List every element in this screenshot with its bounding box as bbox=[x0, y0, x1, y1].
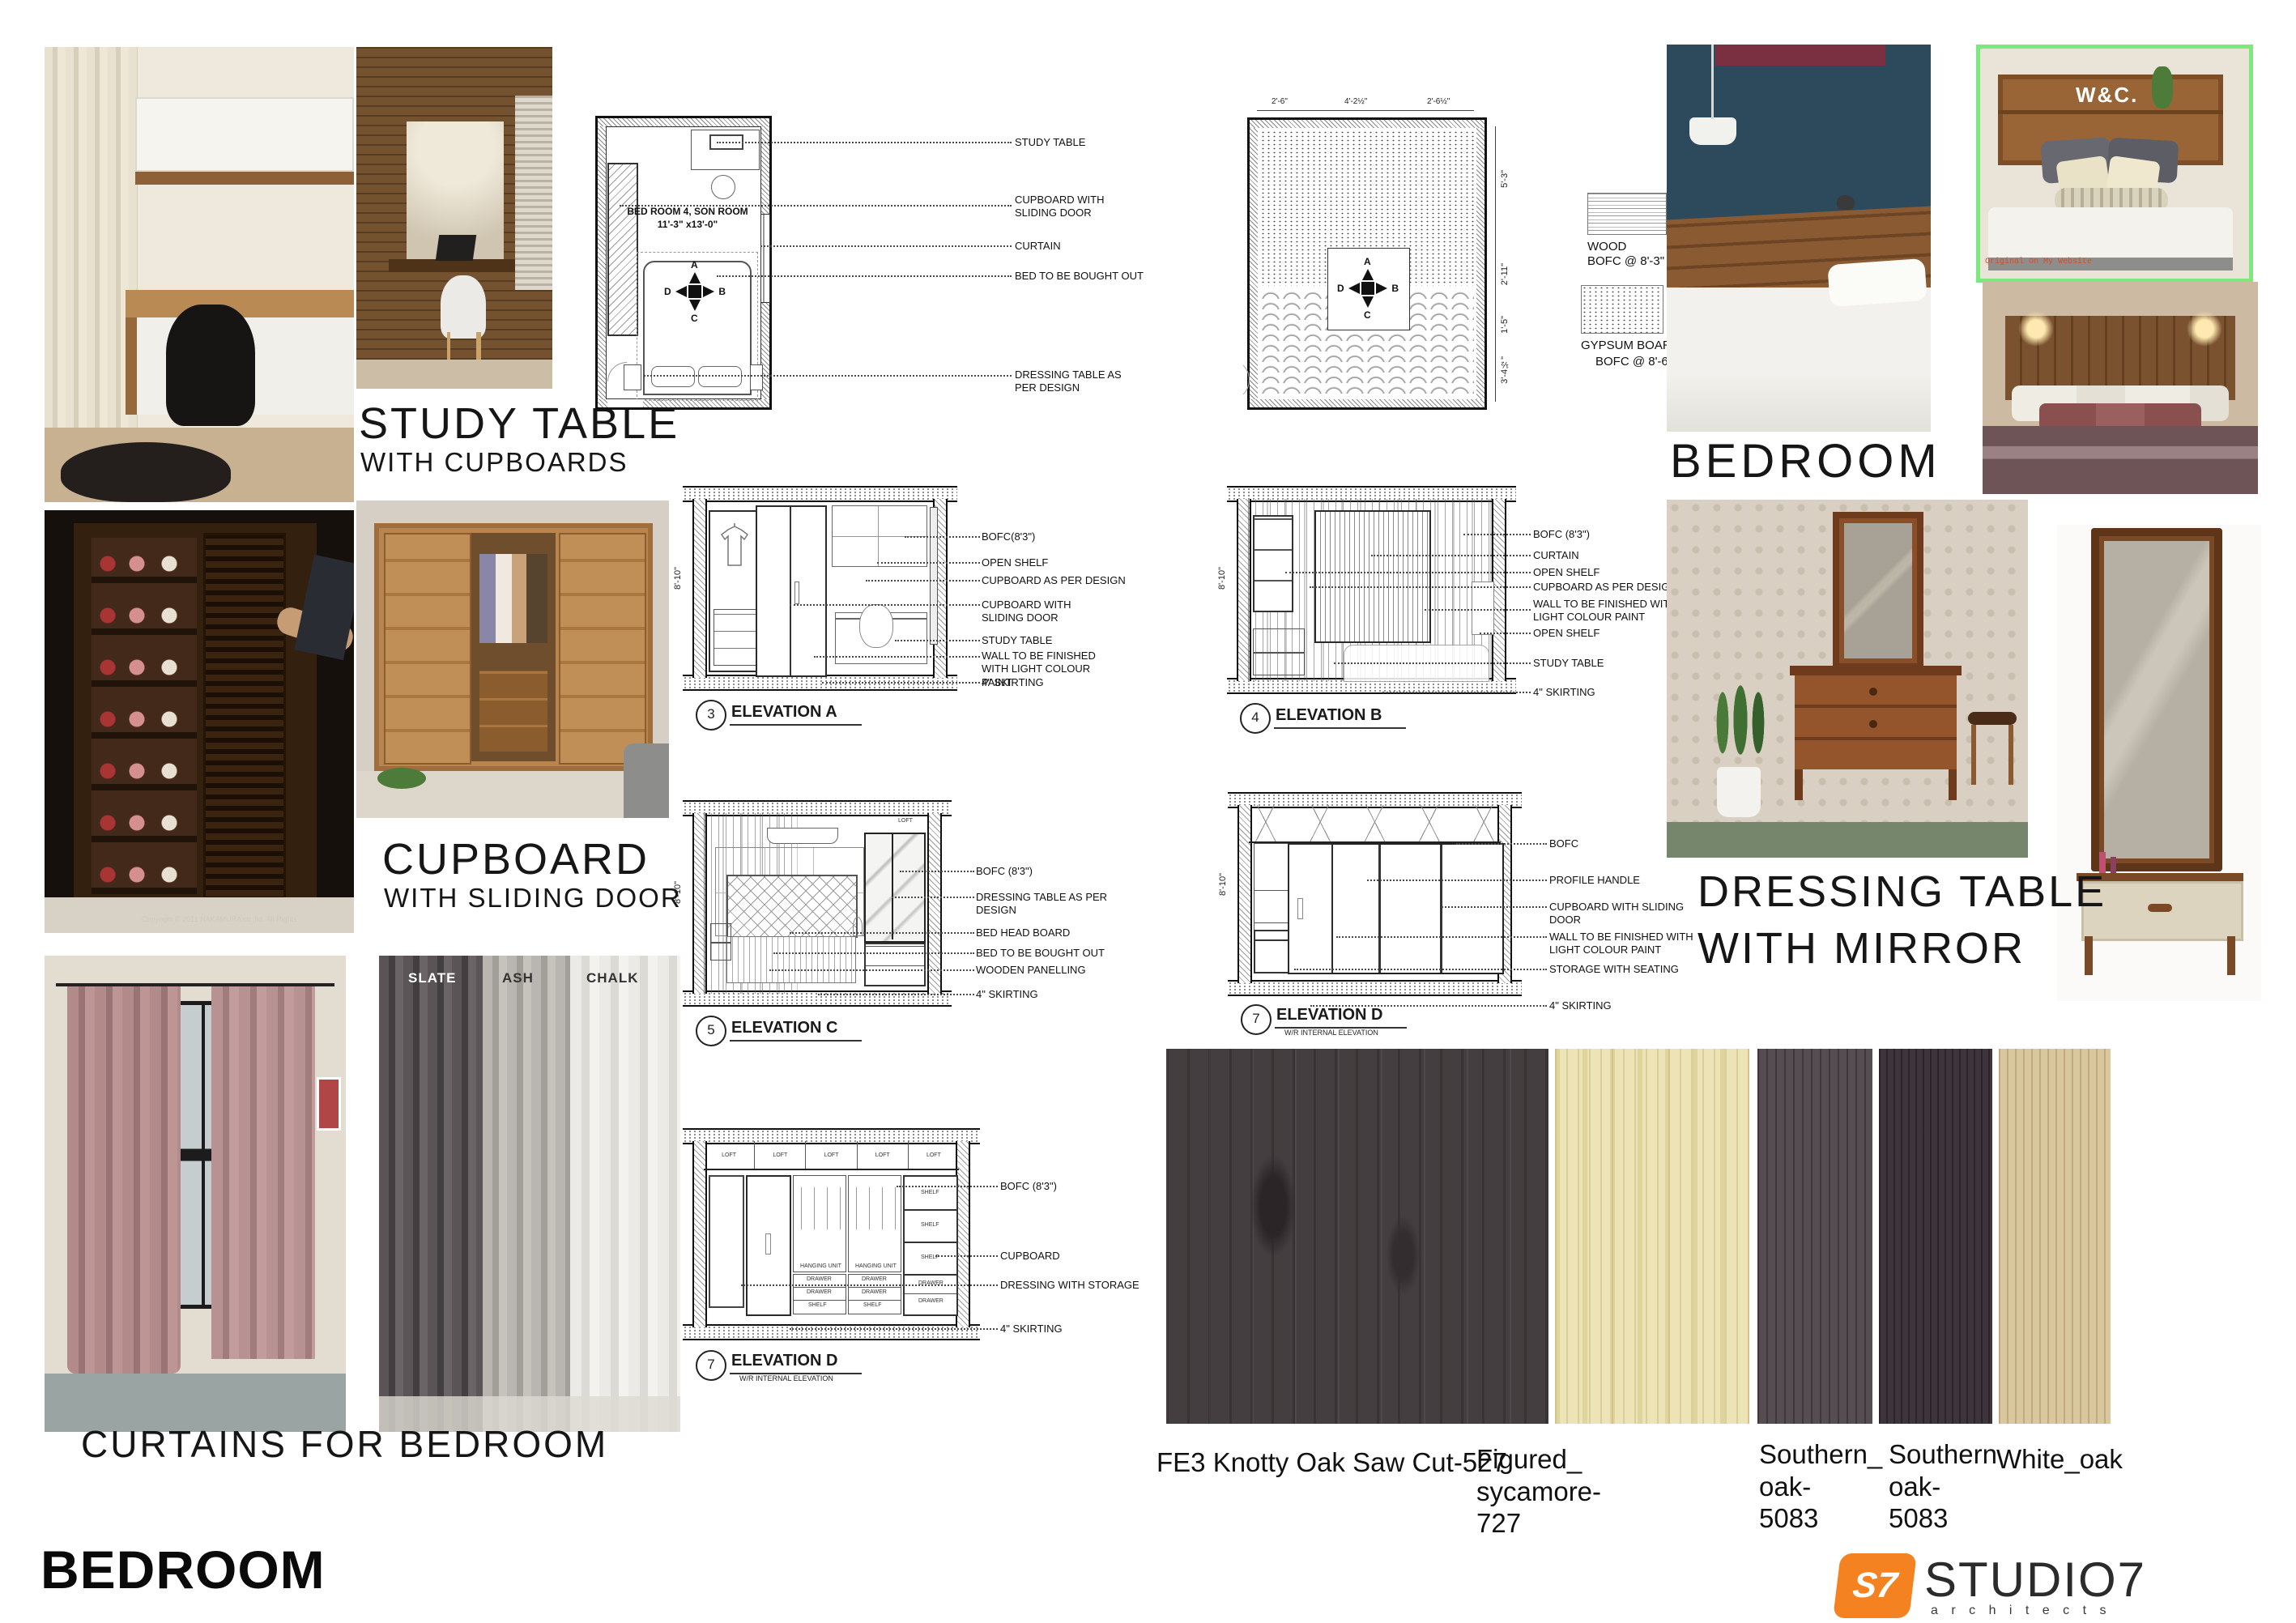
wc-photo-caption: Original On My Website bbox=[1985, 258, 2092, 266]
compass-arrow-right bbox=[703, 286, 714, 297]
studio7-logo: S7 STUDIO7 a r c h i t e c t s bbox=[1837, 1552, 2258, 1621]
legend-wood-name: WOOD bbox=[1587, 240, 1626, 255]
compass-square bbox=[1361, 282, 1374, 295]
mirror-glass-art bbox=[1844, 523, 1912, 658]
open-shelf-right bbox=[1472, 581, 1494, 635]
plan-callout-4: BED TO BE BOUGHT OUT bbox=[1015, 270, 1161, 283]
bedroom-title-left: BEDROOM bbox=[40, 1539, 326, 1600]
sliding-cupboard bbox=[1318, 843, 1504, 974]
leader bbox=[877, 562, 980, 564]
wall-hatch-left bbox=[598, 126, 607, 399]
elevation-a-title: ELEVATION A bbox=[730, 703, 862, 726]
plan-callout-3: CURTAIN bbox=[1015, 240, 1152, 253]
wall-col-left bbox=[692, 499, 707, 678]
wr-door bbox=[746, 1175, 791, 1316]
leader bbox=[1425, 609, 1531, 611]
ceiling-plan-drawing: A C D B bbox=[1247, 117, 1487, 410]
elevation-d1-dim: 8'-10" bbox=[1218, 873, 1228, 896]
lamp-glow-left bbox=[2018, 311, 2054, 347]
elevation-a: 3 ELEVATION A 8'-10" BOFC(8'3") OPEN SHE… bbox=[692, 486, 1146, 729]
plan-compass: A C D B bbox=[669, 266, 721, 317]
elev-d1-callout-4: WALL TO BE FINISHED WITH LIGHT COLOUR PA… bbox=[1549, 931, 1711, 957]
drawer-stack-2: DRAWER DRAWER SHELF bbox=[848, 1274, 901, 1314]
elev-c-callout-6: 4" SKIRTING bbox=[976, 988, 1130, 1001]
elev-c-callout-1: BOFC (8'3") bbox=[976, 865, 1130, 878]
elevation-d2-marker: 7 bbox=[696, 1350, 726, 1381]
tall-mirror-glass-art bbox=[2104, 541, 2209, 858]
leader bbox=[897, 1186, 998, 1187]
legend-wood-bofc: BOFC @ 8'-3" bbox=[1587, 254, 1664, 270]
elev-c-callout-2: DRESSING TABLE AS PER DESIGN bbox=[976, 891, 1114, 918]
compass-arrow-down bbox=[689, 300, 701, 311]
slab-bottom bbox=[1228, 980, 1522, 996]
plan-pillow-1 bbox=[651, 366, 695, 387]
compass-arrow-down bbox=[1362, 296, 1374, 308]
door-left-art bbox=[384, 533, 471, 765]
slate-curtain-art bbox=[379, 956, 486, 1432]
plan-pillow-2 bbox=[698, 366, 742, 387]
drawer-line bbox=[849, 1300, 901, 1301]
elev-b-callout-5: WALL TO BE FINISHED WITH LIGHT COLOUR PA… bbox=[1533, 598, 1683, 624]
mood-board: STUDY TABLE WITH CUPBOARDS Copyright © 2… bbox=[0, 0, 2296, 1623]
bed-headboard bbox=[726, 875, 858, 938]
leader bbox=[773, 952, 974, 954]
elev-b-callout-7: STUDY TABLE bbox=[1533, 657, 1687, 670]
shelf-label: SHELF bbox=[808, 1302, 827, 1308]
drawer-label: DRAWER bbox=[862, 1276, 887, 1282]
lamp-art bbox=[1689, 117, 1736, 145]
plan-cupboard bbox=[607, 163, 638, 336]
leader bbox=[1456, 843, 1547, 845]
study-table-photo-2 bbox=[356, 47, 552, 389]
elevation-b-dim: 8'-10" bbox=[1217, 567, 1227, 590]
elevation-c: LOFT 5 ELEVATION C 8'-10" BOFC (8'3") DR… bbox=[692, 800, 1154, 1047]
shelf-column: SHELF SHELF SHELF DRAWER DRAWER bbox=[903, 1175, 958, 1316]
open-shelf-left bbox=[1253, 515, 1293, 612]
elev-d1-callout-6: 4" SKIRTING bbox=[1549, 999, 1711, 1012]
compass-letter-b: B bbox=[1391, 283, 1399, 294]
perfume2-art bbox=[2111, 857, 2116, 873]
leader bbox=[1463, 534, 1531, 535]
shade-label-slate: SLATE bbox=[408, 970, 456, 986]
curtains-title: CURTAINS FOR BEDROOM bbox=[81, 1422, 608, 1466]
elevation-a-marker: 3 bbox=[696, 700, 726, 731]
rug2-art bbox=[1667, 822, 2028, 858]
loft-cell: LOFT bbox=[806, 1141, 857, 1169]
elevation-d1-title: ELEVATION D bbox=[1275, 1006, 1407, 1029]
material-swatch-southern-oak-2 bbox=[1879, 1049, 1992, 1424]
knob-1 bbox=[1869, 688, 1877, 696]
shade-label-ash: ASH bbox=[502, 970, 534, 986]
drawer-label: DRAWER bbox=[862, 1289, 887, 1295]
drawer-line bbox=[794, 1287, 846, 1288]
elevation-d1-sub: W/R INTERNAL ELEVATION bbox=[1284, 1029, 1378, 1037]
leader bbox=[1371, 555, 1531, 556]
legend-gypsum-name: GYPSUM BOARD bbox=[1581, 339, 1680, 354]
shelf-line bbox=[905, 1274, 956, 1276]
window-strip bbox=[930, 507, 938, 645]
logo-mark-text: S7 bbox=[1851, 1565, 1899, 1606]
bed-skirt bbox=[726, 936, 856, 983]
door-right-art bbox=[559, 533, 646, 765]
leader bbox=[790, 604, 980, 606]
leader bbox=[905, 536, 980, 538]
elevation-b-title: ELEVATION B bbox=[1274, 706, 1406, 729]
elevation-c-drawing: LOFT bbox=[692, 800, 942, 1007]
plan-side-table-right bbox=[750, 364, 763, 390]
elev-d2-callout-1: BOFC (8'3") bbox=[1000, 1180, 1154, 1193]
door-leaf bbox=[1288, 843, 1333, 974]
cupboard-subtitle: WITH SLIDING DOOR bbox=[384, 883, 682, 914]
material-label-sycamore: Figured_ sycamore- 727 bbox=[1476, 1443, 1601, 1540]
hanging-unit-1: HANGING UNIT bbox=[793, 1175, 846, 1272]
leader bbox=[717, 275, 1012, 277]
elevation-d1: 7 ELEVATION D W/R INTERNAL ELEVATION 8'-… bbox=[1237, 792, 1732, 1039]
curtain-left-art bbox=[67, 986, 181, 1374]
leader bbox=[822, 682, 980, 684]
shelf-label: SHELF bbox=[921, 1190, 939, 1195]
compass-letter-c: C bbox=[691, 313, 698, 324]
headboard-shelf-art bbox=[1998, 110, 2223, 114]
plan-room-name: BED ROOM 4, SON ROOM bbox=[611, 206, 765, 217]
leader bbox=[760, 245, 1012, 247]
leader bbox=[1285, 572, 1531, 573]
door-handle bbox=[765, 1233, 771, 1255]
elevation-d1-drawing bbox=[1237, 792, 1512, 996]
elevation-a-drawing bbox=[692, 486, 948, 691]
compass-letter-d: D bbox=[1337, 283, 1344, 294]
compass-square bbox=[688, 285, 701, 298]
nightstand bbox=[710, 923, 731, 961]
shelf-line bbox=[905, 1242, 956, 1243]
material-label-southern-1: Southern_ oak- 5083 bbox=[1759, 1438, 1882, 1535]
shoes-art bbox=[95, 546, 192, 894]
leader bbox=[717, 142, 1012, 143]
logo-sub: a r c h i t e c t s bbox=[1931, 1604, 2111, 1618]
elev-a-callout-4: CUPBOARD WITH SLIDING DOOR bbox=[982, 599, 1115, 625]
shelf-label: SHELF bbox=[921, 1222, 939, 1228]
elevation-a-dim: 8'-10" bbox=[673, 567, 683, 590]
curtain-right-art bbox=[211, 986, 315, 1359]
hanging-unit-label: HANGING UNIT bbox=[800, 1263, 841, 1269]
leader bbox=[818, 994, 974, 995]
leader bbox=[620, 205, 1012, 207]
logo-name: STUDIO7 bbox=[1924, 1552, 2146, 1608]
dim-line-top bbox=[1257, 110, 1474, 111]
elev-d2-callout-2: CUPBOARD bbox=[1000, 1250, 1154, 1263]
wall-col-right bbox=[927, 813, 942, 994]
mirror-divider bbox=[892, 833, 893, 939]
plan-window bbox=[760, 214, 770, 303]
bedding-art bbox=[1667, 288, 1931, 432]
leader bbox=[790, 932, 974, 934]
elev-d1-callout-5: STORAGE WITH SEATING bbox=[1549, 963, 1711, 976]
leader bbox=[644, 375, 1012, 377]
elev-c-callout-4: BED TO BE BOUGHT OUT bbox=[976, 947, 1138, 960]
leader bbox=[935, 1255, 998, 1257]
compass-arrow-up bbox=[689, 272, 701, 283]
cwall-bottom bbox=[1250, 399, 1485, 407]
elevation-b: 4 ELEVATION B 8'-10" BOFC (8'3") CURTAIN… bbox=[1237, 486, 1715, 729]
window-blind-art bbox=[515, 96, 552, 290]
stool-legs-art bbox=[1971, 725, 2013, 785]
knob-2 bbox=[1869, 720, 1877, 728]
compass-arrow-left bbox=[675, 286, 687, 297]
elev-a-callout-3: CUPBOARD AS PER DESIGN bbox=[982, 574, 1135, 587]
compass-letter-c: C bbox=[1364, 309, 1371, 321]
elev-a-callout-1: BOFC(8'3") bbox=[982, 530, 1127, 543]
artwork-art bbox=[1715, 45, 1885, 66]
office-chair-art bbox=[166, 305, 255, 426]
elevation-d2-sub: W/R INTERNAL ELEVATION bbox=[739, 1374, 833, 1382]
study-subtitle: WITH CUPBOARDS bbox=[360, 447, 628, 478]
cupboard-photo-1: Copyright © 2011 NAKAMURA co.,ltd. All R… bbox=[45, 510, 354, 933]
shelf-label: SHELF bbox=[863, 1302, 882, 1308]
dressing-photo-2 bbox=[2057, 525, 2261, 1001]
loft-cell: LOFT bbox=[858, 1141, 909, 1169]
upper-cabinet-art bbox=[135, 97, 354, 185]
dim-top-3: 2'-6½" bbox=[1427, 97, 1450, 106]
photo-watermark: Copyright © 2011 NAKAMURA co.,ltd. All R… bbox=[142, 915, 297, 923]
desk-chair bbox=[859, 604, 893, 648]
elevation-c-dim: 8'-10" bbox=[673, 881, 683, 904]
plan-callout-2: CUPBOARD WITH SLIDING DOOR bbox=[1015, 194, 1144, 220]
leader bbox=[1334, 662, 1531, 664]
elev-a-callout-7: 4" SKIRTING bbox=[982, 676, 1127, 689]
floor2-art bbox=[356, 360, 552, 389]
clothes-art bbox=[479, 554, 547, 643]
elev-d2-callout-4: 4" SKIRTING bbox=[1000, 1323, 1154, 1335]
plant-pot-art bbox=[1717, 767, 1761, 817]
cwall-top bbox=[1250, 120, 1485, 128]
ceiling-door-arc bbox=[1208, 359, 1250, 401]
plant-leaves-art bbox=[1696, 637, 1785, 775]
shade-label-chalk: CHALK bbox=[586, 970, 639, 986]
compass-letter-a: A bbox=[1364, 256, 1371, 267]
loft-cell: LOFT bbox=[909, 1141, 959, 1169]
logo-mark-icon: S7 bbox=[1833, 1553, 1917, 1618]
laptop-art bbox=[436, 235, 476, 261]
desk2-art bbox=[389, 259, 526, 272]
cupboard-title: CUPBOARD bbox=[382, 834, 650, 884]
elev-d2-callout-3: DRESSING WITH STORAGE bbox=[1000, 1279, 1162, 1292]
compass-letter-a: A bbox=[691, 259, 698, 270]
elev-b-callout-8: 4" SKIRTING bbox=[1533, 686, 1687, 699]
sofa-corner-art bbox=[624, 743, 669, 818]
door-divider bbox=[790, 507, 791, 675]
elevation-b-marker: 4 bbox=[1240, 703, 1271, 734]
base-knob-art bbox=[2148, 904, 2172, 912]
lamp-glow-right bbox=[2187, 311, 2222, 347]
rug-art bbox=[61, 442, 231, 502]
material-label-southern-2: Southern oak- 5083 bbox=[1889, 1438, 1997, 1535]
leader bbox=[1382, 692, 1531, 693]
plan-callout-1: STUDY TABLE bbox=[1015, 136, 1152, 149]
plan-callout-5: DRESSING TABLE AS PER DESIGN bbox=[1015, 368, 1144, 395]
shelf-line bbox=[905, 1293, 956, 1294]
legend-wood-swatch bbox=[1587, 193, 1667, 235]
dresser-drawers bbox=[864, 943, 926, 986]
slab-top bbox=[683, 486, 957, 502]
loft-x-band bbox=[1249, 805, 1501, 843]
leader bbox=[1310, 1005, 1547, 1007]
leader bbox=[741, 1284, 998, 1286]
shelf-line bbox=[905, 1209, 956, 1211]
louver-door-art bbox=[203, 533, 286, 904]
bedroom-photo-3 bbox=[1983, 282, 2258, 494]
curtains-photo-1 bbox=[45, 956, 346, 1432]
door-handle bbox=[794, 581, 799, 604]
cabinet-lower-left bbox=[1253, 628, 1305, 675]
sliding-door-panel bbox=[756, 505, 827, 677]
compass-letter-b: B bbox=[718, 286, 726, 297]
elevation-d2: LOFT LOFT LOFT LOFT LOFT HANGING UNIT HA… bbox=[692, 1128, 1154, 1395]
loft-row: LOFT LOFT LOFT LOFT LOFT bbox=[704, 1141, 959, 1170]
leader bbox=[769, 969, 974, 971]
base-legs-art bbox=[2085, 936, 2235, 975]
legend-gypsum-bofc: BOFC @ 8'-6" bbox=[1595, 355, 1672, 370]
headboard-letters: W&C. bbox=[2076, 83, 2138, 108]
leader bbox=[814, 656, 980, 658]
dressing-title-2: WITH MIRROR bbox=[1698, 923, 2026, 973]
bird-art bbox=[1837, 195, 1855, 210]
elev-a-callout-2: OPEN SHELF bbox=[982, 556, 1127, 569]
bedroom-title-right: BEDROOM bbox=[1670, 434, 1941, 488]
floor-plan: BED ROOM 4, SON ROOM 11'-3" x13'-0" A C … bbox=[595, 116, 1162, 415]
dim-right-3: 1'-5" bbox=[1500, 316, 1510, 334]
material-swatch-fe3 bbox=[1166, 1049, 1548, 1424]
elev-b-callout-2: CURTAIN bbox=[1533, 549, 1687, 562]
leader bbox=[1480, 633, 1531, 634]
door-handle bbox=[1297, 898, 1303, 919]
dim-right-1: 5'-3" bbox=[1500, 170, 1510, 188]
dressing-title-1: DRESSING TABLE bbox=[1698, 867, 2106, 917]
cwall-left bbox=[1250, 128, 1258, 399]
compass-arrow-up bbox=[1362, 269, 1374, 280]
lamp-stem-art bbox=[1711, 45, 1714, 119]
panel-divider-1 bbox=[1378, 845, 1381, 973]
drawer-label: DRAWER bbox=[918, 1298, 944, 1304]
dim-top-1: 2'-6" bbox=[1272, 97, 1288, 106]
elevation-d2-drawing: LOFT LOFT LOFT LOFT LOFT HANGING UNIT HA… bbox=[692, 1128, 970, 1340]
art-frame-art bbox=[317, 1077, 341, 1131]
elev-c-callout-3: BED HEAD BOARD bbox=[976, 927, 1130, 939]
loft-cell: LOFT bbox=[755, 1141, 806, 1169]
material-swatch-southern-oak-1 bbox=[1757, 1049, 1872, 1424]
bedroom-photo-2: W&C. Original On My Website bbox=[1976, 45, 2253, 283]
bedspread-art bbox=[1983, 426, 2258, 494]
elev-b-callout-3: OPEN SHELF bbox=[1533, 566, 1687, 579]
elev-a-callout-5: STUDY TABLE bbox=[982, 634, 1127, 647]
drawer-stack bbox=[714, 609, 757, 666]
elevation-c-title: ELEVATION C bbox=[730, 1019, 862, 1042]
table-top-art bbox=[1790, 666, 1962, 675]
ceiling-shelf bbox=[767, 828, 838, 844]
dressing-photo-1 bbox=[1667, 500, 2028, 858]
elevation-c-marker: 5 bbox=[696, 1016, 726, 1046]
cupboard-photo-2 bbox=[356, 501, 669, 818]
material-swatch-sycamore bbox=[1555, 1049, 1749, 1424]
loft-label: LOFT bbox=[898, 818, 913, 824]
drawer-line bbox=[794, 1300, 846, 1301]
dim-right-2: 2'-11" bbox=[1500, 263, 1510, 285]
drawer-label: DRAWER bbox=[807, 1276, 832, 1282]
compass-letter-d: D bbox=[664, 286, 671, 297]
floor-plan-drawing: BED ROOM 4, SON ROOM 11'-3" x13'-0" A C … bbox=[595, 116, 772, 410]
elevation-d2-title: ELEVATION D bbox=[730, 1352, 862, 1374]
dim-right-4: 3'-4½" bbox=[1500, 356, 1510, 384]
drawer-line bbox=[849, 1287, 901, 1288]
ceiling-center-panel: A C D B bbox=[1327, 248, 1410, 330]
ceiling-compass: A C D B bbox=[1342, 262, 1394, 314]
tall-panel bbox=[709, 1175, 744, 1308]
white-chair-art bbox=[441, 275, 486, 339]
wall-hatch-top bbox=[598, 118, 769, 127]
chalk-curtain-art bbox=[570, 956, 680, 1432]
curtain-panel bbox=[1314, 510, 1431, 643]
table-legs-art bbox=[1795, 769, 1957, 800]
cwall-right bbox=[1476, 128, 1485, 399]
elev-d1-callout-2: PROFILE HANDLE bbox=[1549, 874, 1711, 887]
study-table-photo-1 bbox=[45, 47, 354, 502]
leader bbox=[1442, 906, 1547, 908]
leader bbox=[1310, 586, 1531, 588]
pillow-art bbox=[1827, 258, 1927, 307]
compass-arrow-left bbox=[1348, 283, 1360, 294]
open-drawers-art bbox=[479, 671, 547, 752]
elev-b-callout-6: OPEN SHELF bbox=[1533, 627, 1687, 640]
leader bbox=[1367, 880, 1547, 881]
leader bbox=[892, 897, 974, 898]
hanging-unit-2: HANGING UNIT bbox=[848, 1175, 901, 1272]
legend-gypsum-swatch bbox=[1581, 285, 1663, 334]
elev-d1-callout-3: CUPBOARD WITH SLIDING DOOR bbox=[1549, 901, 1699, 927]
drawer-label: DRAWER bbox=[807, 1289, 832, 1295]
plant2-art bbox=[2152, 66, 2173, 109]
slab-bottom bbox=[683, 1324, 980, 1340]
shirt-icon bbox=[718, 523, 751, 569]
bedroom-photo-1 bbox=[1667, 45, 1931, 432]
loft-cell: LOFT bbox=[704, 1141, 755, 1169]
stool-art bbox=[1968, 712, 2017, 725]
material-label-fe3: FE3 Knotty Oak Saw Cut-527 bbox=[1157, 1446, 1507, 1479]
dim-top-2: 4'-2½" bbox=[1344, 97, 1367, 106]
leader bbox=[1294, 969, 1547, 970]
elev-c-callout-5: WOODEN PANELLING bbox=[976, 964, 1130, 977]
leader bbox=[1336, 936, 1547, 938]
dim-line-right bbox=[1495, 126, 1496, 402]
ceiling-plan: 2'-6" 4'-2½" 2'-6½" A C D B bbox=[1247, 73, 1701, 421]
leader bbox=[900, 871, 974, 872]
leader bbox=[790, 1328, 998, 1330]
plan-chair bbox=[711, 175, 735, 199]
mirror-cupboard bbox=[864, 833, 926, 943]
drawer-stack-1: DRAWER DRAWER SHELF bbox=[793, 1274, 846, 1314]
hanging-unit-label: HANGING UNIT bbox=[855, 1263, 897, 1269]
panel-divider-2 bbox=[1440, 845, 1442, 973]
elev-b-callout-1: BOFC (8'3") bbox=[1533, 528, 1687, 541]
elevation-d1-marker: 7 bbox=[1241, 1004, 1272, 1035]
material-label-white-oak: White_oak bbox=[1996, 1443, 2123, 1476]
leader bbox=[895, 640, 980, 641]
compass-arrow-right bbox=[1376, 283, 1387, 294]
plan-room-size: 11'-3" x13'-0" bbox=[611, 219, 765, 230]
material-swatch-white-oak bbox=[1999, 1049, 2111, 1424]
plant-art bbox=[377, 768, 426, 789]
ash-curtain-art bbox=[483, 956, 573, 1432]
curtains-photo-2: SLATE ASH CHALK bbox=[379, 956, 680, 1432]
leader bbox=[866, 580, 980, 581]
